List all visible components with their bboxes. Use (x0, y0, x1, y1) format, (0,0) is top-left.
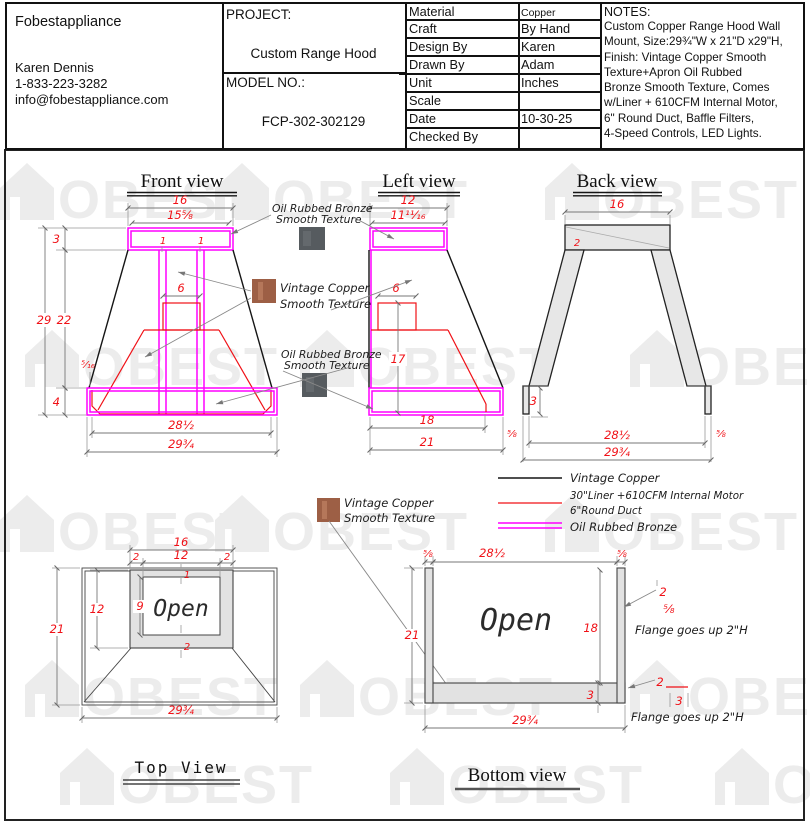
watermark-tile: OBEST (630, 330, 810, 397)
dim-left-band-depth: 11¹¹⁄₁₆ (391, 208, 426, 222)
left-view-title: Left view (382, 171, 456, 192)
vintage-mid-label-1: Vintage Copper (280, 281, 371, 295)
notes-line: w/Liner + 610CFM Internal Motor, (604, 95, 802, 110)
notes-title: NOTES: (604, 5, 802, 19)
watermark-tile: OBEST (25, 660, 279, 727)
notes-line: Bronze Smooth Texture, Comes (604, 80, 802, 95)
dim-back-top-width: 16 (610, 197, 625, 211)
watermark-house-icon (300, 660, 354, 717)
dim-front-band-width: 15⅝ (167, 208, 193, 222)
spec-value-drawn-by: Adam (521, 57, 599, 73)
dim-front-total-height: 29 (37, 313, 52, 327)
dim-left-top-depth: 12 (401, 193, 416, 207)
model-label: MODEL NO.: (226, 75, 305, 90)
watermark-house-icon (25, 330, 79, 387)
vintage-mid-label-2: Smooth Texture (280, 297, 371, 311)
watermark-house-icon (390, 748, 444, 805)
back-left-foot (523, 386, 529, 414)
flange-right-note: Flange goes up 2"H (635, 623, 748, 637)
spec-value-design-by: Karen (521, 39, 599, 55)
divider (600, 4, 602, 148)
vintage-page-label-2: Smooth Texture (344, 511, 435, 525)
title-block: Fobestappliance Karen Dennis 1-833-223-3… (5, 2, 805, 150)
spec-value-craft: By Hand (521, 21, 599, 37)
watermark-tile: OBEST (25, 330, 279, 397)
back-left-leg (529, 250, 584, 386)
watermark-tile: OBEST (715, 748, 810, 815)
bronze-swatch-top-sheen (303, 231, 311, 246)
dim-bottom-thickness: 3 (587, 688, 594, 702)
flange-right-height: 2 (659, 585, 666, 599)
spec-label-design-by: Design By (409, 39, 515, 55)
flange-bottom-note: Flange goes up 2"H (631, 710, 744, 724)
notes-line: Texture+Apron Oil Rubbed (604, 65, 802, 80)
notes-line: Custom Copper Range Hood Wall (604, 19, 802, 34)
project-value: Custom Range Hood (222, 46, 405, 61)
notes-block: NOTES: Custom Copper Range Hood Wall Mou… (604, 5, 802, 141)
notes-line: Mount, Size:29¾"W x 21"D x29"H, (604, 34, 802, 49)
dim-left-lower-depth: 18 (420, 413, 435, 427)
spec-label-material: Material (409, 4, 515, 20)
copper-swatch-mid (252, 279, 276, 303)
dim-top-total-depth: 21 (50, 622, 65, 636)
dim-front-body-height: 22 (57, 313, 72, 327)
dim-bottom-total-depth: 21 (405, 628, 420, 642)
copper-swatch-page-sheen (322, 501, 327, 519)
bottom-view-flange-right: 2 ⅝ Flange goes up 2"H (624, 580, 748, 637)
leader-arrowhead (216, 400, 223, 404)
dim-top-rim-top: 1 (184, 570, 190, 581)
spec-label-date: Date (409, 111, 515, 127)
divider (222, 72, 405, 74)
contact-name: Karen Dennis (15, 60, 94, 75)
dim-back-lower-width: 28½ (604, 428, 630, 442)
flange-bottom-height: 2 (656, 675, 663, 689)
spec-value-unit: Inches (521, 75, 599, 91)
dim-front-apron-inset: ⁵⁄₁₆ (81, 360, 95, 371)
dim-top-rim-right: 2 (224, 552, 230, 563)
spec-value-material: Copper (521, 5, 599, 21)
dim-front-total-width: 29¾ (168, 437, 195, 451)
legend-liner-label-1: 30"Liner +610CFM Internal Motor (570, 490, 744, 502)
spec-value-date: 10-30-25 (521, 111, 599, 127)
dim-top-collar-width: 16 (174, 535, 189, 549)
copper-swatch-mid-sheen (258, 282, 263, 300)
flange-bottom-depth: 3 (675, 694, 682, 708)
dim-front-duct-width: 6 (177, 281, 184, 295)
leader-arrowhead (387, 234, 394, 239)
back-view-dimensions: 3 ⅝ 28½ 29¾ ⅝ (507, 386, 726, 463)
contact-email: info@fobestappliance.com (15, 92, 168, 107)
model-value: FCP-302-302129 (222, 114, 405, 129)
top-view-open-label: Open (153, 596, 208, 622)
bottom-view-open-label: Open (480, 603, 552, 638)
spec-label-scale: Scale (409, 93, 515, 109)
dim-left-liner-height: 17 (391, 352, 406, 366)
copper-swatch-page (317, 498, 340, 522)
bottom-view-title: Bottom view (468, 765, 567, 786)
dim-front-apron-height: 4 (53, 395, 60, 409)
legend-copper-label: Vintage Copper (570, 471, 661, 485)
legend-liner-label-2: 6"Round Duct (570, 505, 643, 517)
dim-left-duct-width: 6 (392, 281, 399, 295)
front-view-dimensions: 16 15⅝ 3 22 29 4 1 1 6 ⁵⁄₁₆ 28½ 29¾ (36, 193, 279, 457)
dim-back-foot-width-left: ⅝ (507, 429, 517, 440)
dim-front-top-width: 16 (173, 193, 188, 207)
spec-label-checked-by: Checked By (409, 129, 515, 145)
dim-top-hole-depth: 9 (136, 599, 143, 613)
leader-arrowhead (405, 280, 412, 284)
dim-back-foot-width-right: ⅝ (716, 429, 726, 440)
flange-right-width: ⅝ (663, 602, 674, 616)
watermark-house-icon (715, 748, 769, 805)
dim-bottom-total-width: 29¾ (512, 713, 539, 727)
leader-arrowhead (178, 272, 185, 276)
spec-value-checked-by (521, 129, 599, 145)
dim-bottom-inner-width: 28½ (479, 546, 505, 560)
watermark-house-icon (25, 660, 79, 717)
dim-front-lower-width: 28½ (168, 418, 194, 432)
dim-back-band-height: 2 (574, 238, 580, 249)
notes-line: Finish: Vintage Copper Smooth (604, 50, 802, 65)
spec-value-scale (521, 93, 599, 109)
dim-top-rim-bottom: 2 (184, 642, 190, 653)
vintage-page-label-1: Vintage Copper (344, 496, 435, 510)
dim-back-foot-height: 3 (530, 394, 537, 408)
dim-top-total-width: 29¾ (168, 703, 195, 717)
bottom-view-left-wall (425, 568, 433, 703)
dim-front-gap-left: 1 (160, 236, 166, 247)
dim-top-collar-depth: 12 (90, 602, 105, 616)
watermark-house-icon (0, 495, 54, 552)
dim-front-gap-right: 1 (198, 236, 204, 247)
notes-line: 6" Round Duct, Baffle Filters, (604, 111, 802, 126)
bottom-view-right-wall (617, 568, 625, 703)
dim-top-hole-width: 12 (174, 548, 189, 562)
top-view: Open 16 2 12 2 1 12 9 (48, 535, 279, 784)
orb-lower-label-2: Smooth Texture (284, 359, 370, 372)
bronze-swatch-top (299, 227, 325, 250)
orb-top-label-2: Smooth Texture (276, 213, 362, 226)
legend-bronze-label: Oil Rubbed Bronze (570, 520, 677, 534)
dim-front-band-height: 3 (53, 232, 60, 246)
dim-bottom-wall-right: ⅝ (617, 549, 627, 560)
back-view-title: Back view (577, 171, 658, 192)
watermark-house-icon (60, 748, 114, 805)
drawing-sheet: OBESTOBESTOBESTOBESTOBESTOBESTOBESTOBEST… (0, 0, 810, 825)
dim-bottom-inner-depth: 18 (583, 621, 598, 635)
project-label: PROJECT: (226, 7, 291, 22)
dim-left-total-depth: 21 (420, 435, 435, 449)
contact-phone: 1-833-223-3282 (15, 76, 108, 91)
bottom-view-base (425, 683, 625, 703)
company-name: Fobestappliance (15, 14, 121, 30)
dim-bottom-wall-left: ⅝ (423, 549, 433, 560)
front-view-title: Front view (141, 171, 224, 192)
spec-label-unit: Unit (409, 75, 515, 91)
spec-label-craft: Craft (409, 21, 515, 37)
dim-top-rim-left: 2 (133, 552, 139, 563)
notes-line: 4-Speed Controls, LED Lights. (604, 126, 802, 141)
dim-back-total-width: 29¾ (604, 445, 631, 459)
top-view-title: Top View (134, 758, 227, 777)
spec-label-drawn-by: Drawn By (409, 57, 515, 73)
watermark-house-icon (0, 163, 54, 220)
back-right-foot (705, 386, 711, 414)
